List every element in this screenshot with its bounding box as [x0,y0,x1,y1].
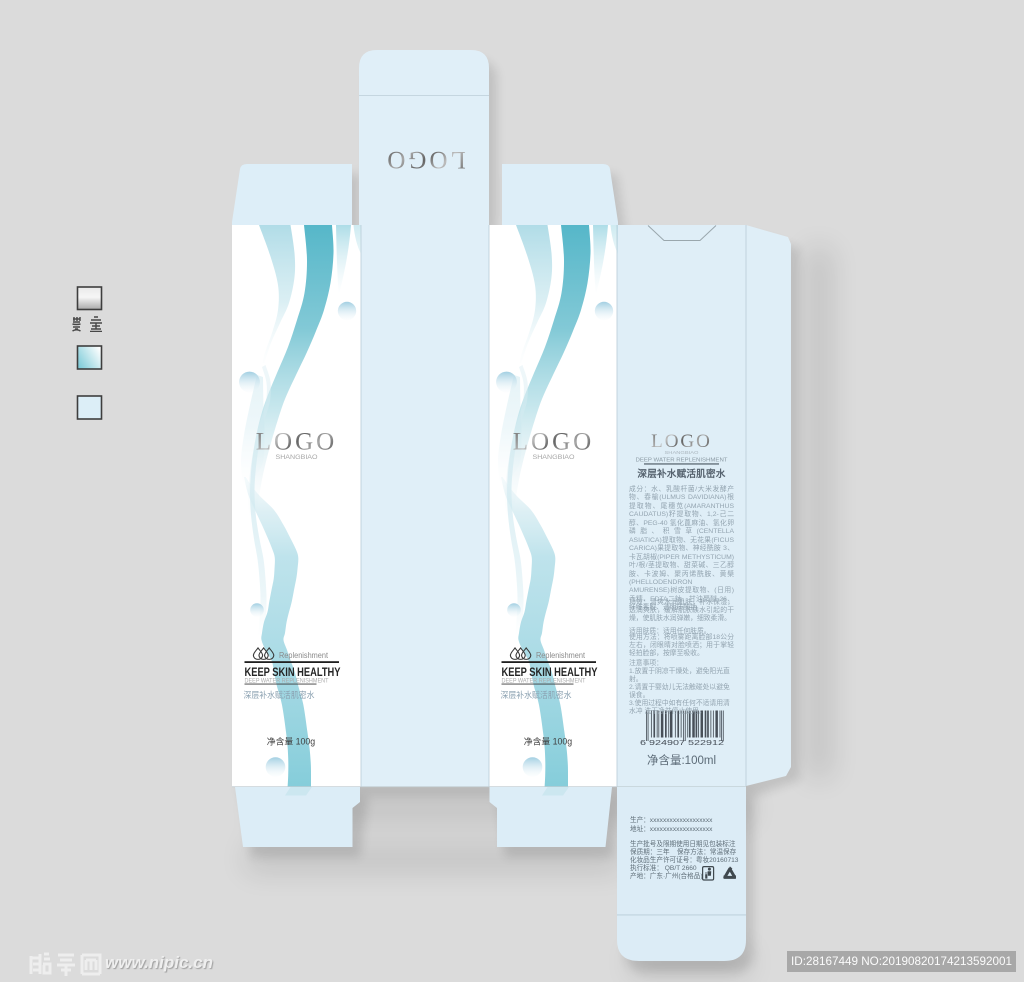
svg-text:6 924907 522912: 6 924907 522912 [640,740,724,747]
svg-text:DEEP WATER REPLENISHMENT: DEEP WATER REPLENISHMENT [636,458,729,464]
svg-text:SHANGBIAO: SHANGBIAO [665,450,700,455]
svg-text:LOGO: LOGO [651,431,712,452]
svg-text:净含量:100ml: 净含量:100ml [647,753,716,767]
svg-text:LOGO: LOGO [384,146,465,173]
svg-text:深层补水赋活肌密水: 深层补水赋活肌密水 [637,468,725,480]
